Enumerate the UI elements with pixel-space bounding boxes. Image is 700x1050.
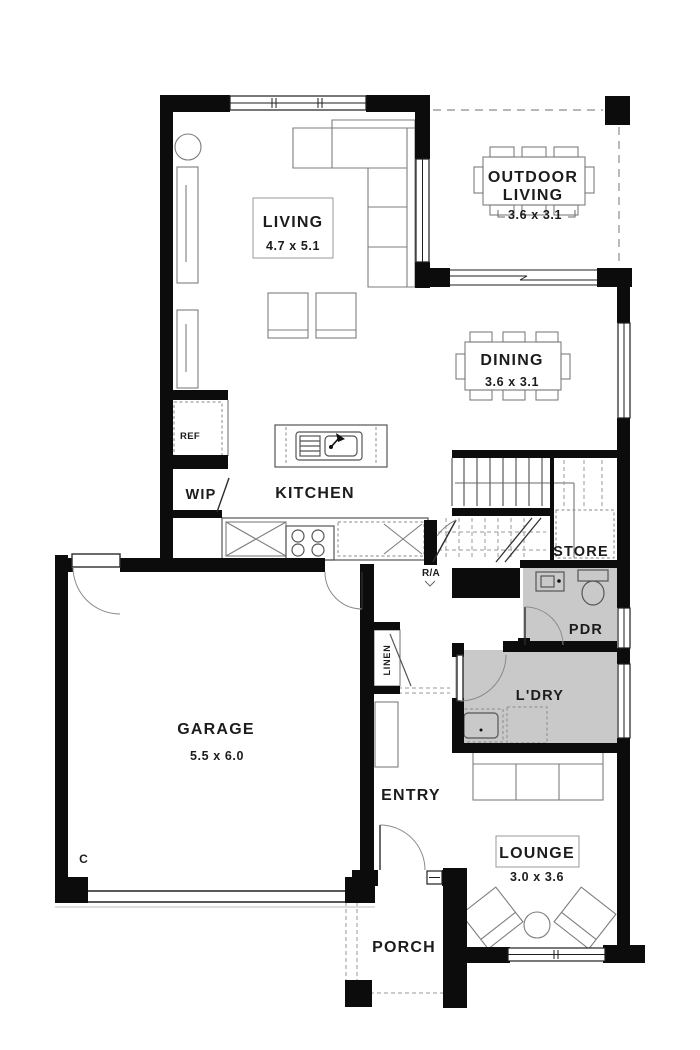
windows-layer bbox=[55, 96, 630, 961]
cooktop-bench bbox=[222, 518, 428, 560]
front-entry-door bbox=[380, 825, 425, 870]
label-porch: PORCH bbox=[372, 939, 436, 956]
sofa bbox=[473, 752, 603, 800]
fridge-space bbox=[174, 402, 222, 456]
ottoman bbox=[268, 293, 308, 338]
armchair bbox=[461, 887, 523, 949]
ottoman bbox=[316, 293, 356, 338]
ra-symbol bbox=[425, 581, 435, 586]
round-table bbox=[524, 912, 550, 938]
cooktop bbox=[286, 526, 334, 560]
label-garage-dims: 5.5 x 6.0 bbox=[190, 749, 244, 763]
label-wip: WIP bbox=[186, 487, 217, 503]
label-store: STORE bbox=[553, 544, 609, 560]
label-living: LIVING bbox=[263, 214, 324, 231]
garage-side-door bbox=[72, 554, 120, 614]
entry-niche bbox=[375, 702, 398, 767]
stacker-door bbox=[450, 270, 597, 285]
label-lounge-dims: 3.0 x 3.6 bbox=[510, 870, 564, 884]
label-ref: REF bbox=[180, 431, 200, 442]
floor-plan-page: LIVING 4.7 x 5.1 OUTDOOR LIVING 3.6 x 3.… bbox=[0, 0, 700, 1045]
label-kitchen: KITCHEN bbox=[275, 485, 355, 502]
label-ldry: L'DRY bbox=[516, 688, 564, 704]
side-table bbox=[175, 134, 201, 160]
dim-bracket bbox=[568, 210, 575, 217]
label-lounge: LOUNGE bbox=[499, 845, 575, 862]
lounge-window bbox=[508, 948, 605, 961]
living-furniture bbox=[175, 120, 415, 388]
label-dining-dims: 3.6 x 3.1 bbox=[485, 375, 539, 389]
label-living-dims: 4.7 x 5.1 bbox=[266, 239, 320, 253]
laundry-window bbox=[618, 664, 630, 738]
tall-cabinet-2 bbox=[177, 310, 198, 388]
garage-entry-door bbox=[325, 572, 362, 609]
kitchen-fittings bbox=[174, 400, 428, 560]
label-garage: GARAGE bbox=[177, 721, 254, 738]
label-outdoor-1: OUTDOOR bbox=[488, 169, 578, 186]
living-window bbox=[230, 96, 366, 110]
label-pdr: PDR bbox=[569, 622, 603, 638]
dim-bracket bbox=[498, 210, 505, 217]
tall-cabinet bbox=[177, 167, 198, 283]
pdr-window bbox=[618, 608, 630, 648]
island-bench bbox=[275, 425, 387, 467]
wip-door bbox=[217, 478, 229, 512]
label-outdoor-2: LIVING bbox=[503, 187, 564, 204]
label-entry: ENTRY bbox=[381, 787, 441, 804]
label-linen: LINEN bbox=[382, 645, 392, 676]
armchair bbox=[554, 887, 616, 949]
entry-sidelight bbox=[427, 871, 442, 884]
label-outdoor-dims: 3.6 x 3.1 bbox=[508, 208, 562, 222]
garage-door-opening bbox=[55, 891, 375, 907]
label-ra: R/A bbox=[422, 568, 440, 579]
label-dining: DINING bbox=[480, 352, 543, 369]
label-c-marker: C bbox=[79, 852, 89, 866]
corner-sofa bbox=[293, 120, 415, 287]
dining-window bbox=[618, 323, 630, 418]
living-east-window bbox=[416, 159, 429, 262]
floor-plan-drawing: LIVING 4.7 x 5.1 OUTDOOR LIVING 3.6 x 3.… bbox=[0, 0, 700, 1045]
